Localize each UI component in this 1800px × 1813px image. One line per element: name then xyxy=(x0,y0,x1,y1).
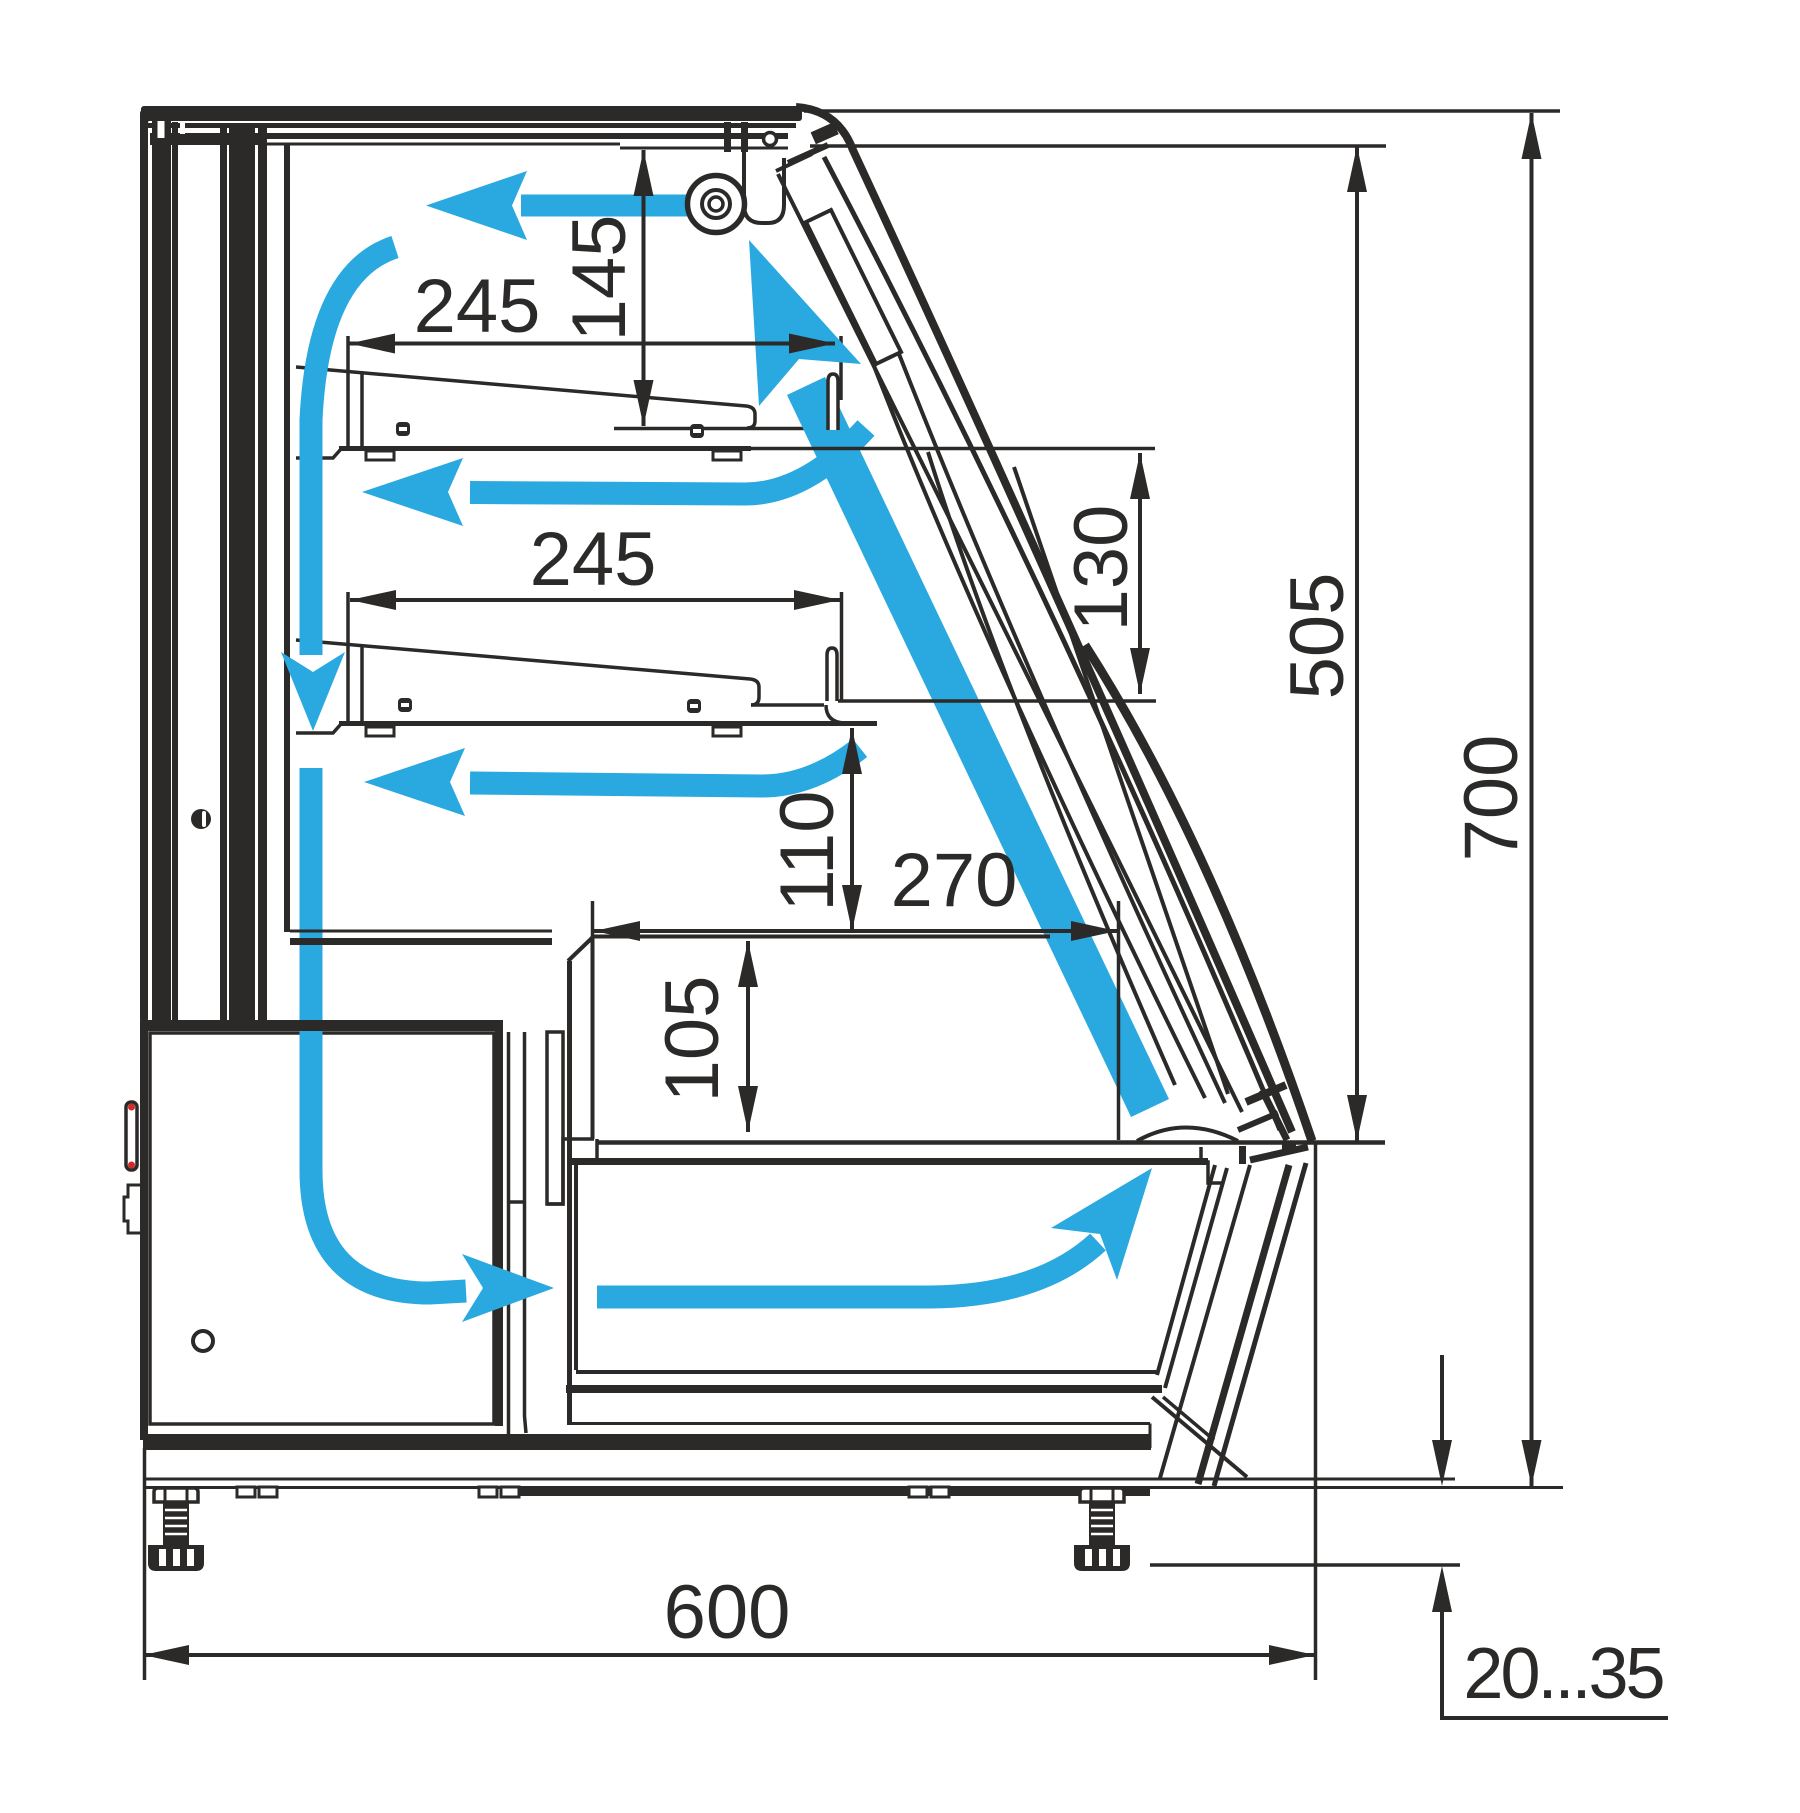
svg-text:600: 600 xyxy=(664,1570,791,1655)
svg-text:505: 505 xyxy=(1275,573,1360,700)
svg-text:20...35: 20...35 xyxy=(1463,1634,1663,1714)
svg-text:130: 130 xyxy=(1059,505,1144,632)
svg-text:700: 700 xyxy=(1449,735,1534,862)
svg-text:245: 245 xyxy=(414,264,541,349)
svg-text:145: 145 xyxy=(557,215,642,342)
svg-text:105: 105 xyxy=(650,976,735,1103)
svg-text:110: 110 xyxy=(765,790,850,911)
svg-text:245: 245 xyxy=(530,517,657,602)
svg-text:270: 270 xyxy=(891,838,1018,923)
